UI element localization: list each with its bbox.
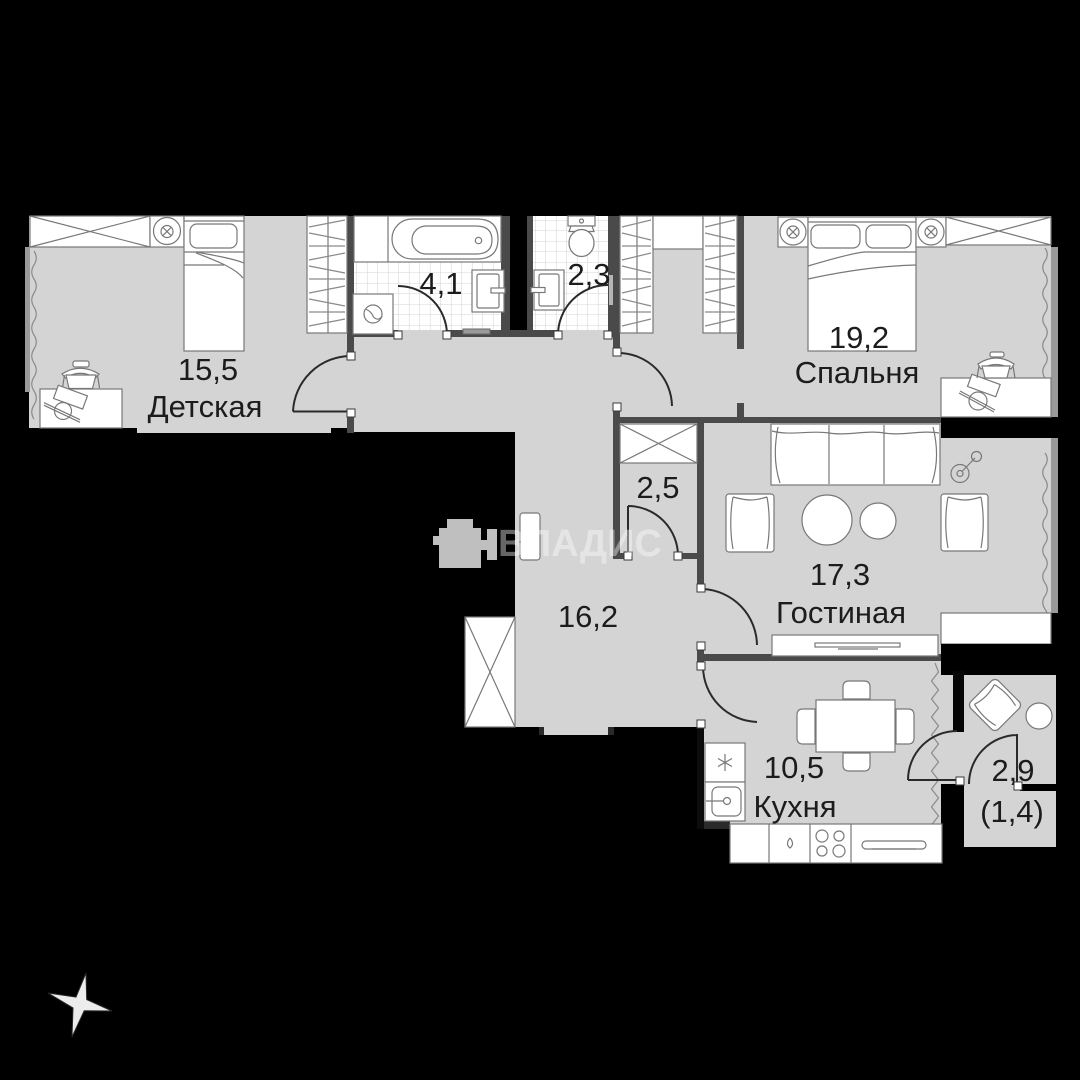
svg-text:19,2: 19,2 xyxy=(829,320,889,355)
svg-text:Детская: Детская xyxy=(148,389,263,424)
svg-text:Спальня: Спальня xyxy=(795,355,920,390)
svg-text:4,1: 4,1 xyxy=(419,266,462,301)
svg-text:ВЛАДИС: ВЛАДИС xyxy=(498,523,662,565)
svg-text:15,5: 15,5 xyxy=(178,352,238,387)
svg-text:17,3: 17,3 xyxy=(810,557,870,592)
svg-text:16,2: 16,2 xyxy=(558,599,618,634)
svg-text:2,9: 2,9 xyxy=(991,753,1034,788)
svg-text:2,3: 2,3 xyxy=(567,257,610,292)
svg-text:10,5: 10,5 xyxy=(764,750,824,785)
svg-text:(1,4): (1,4) xyxy=(980,794,1044,829)
svg-text:Гостиная: Гостиная xyxy=(776,595,906,630)
svg-text:2,5: 2,5 xyxy=(636,470,679,505)
svg-text:Кухня: Кухня xyxy=(754,789,837,824)
